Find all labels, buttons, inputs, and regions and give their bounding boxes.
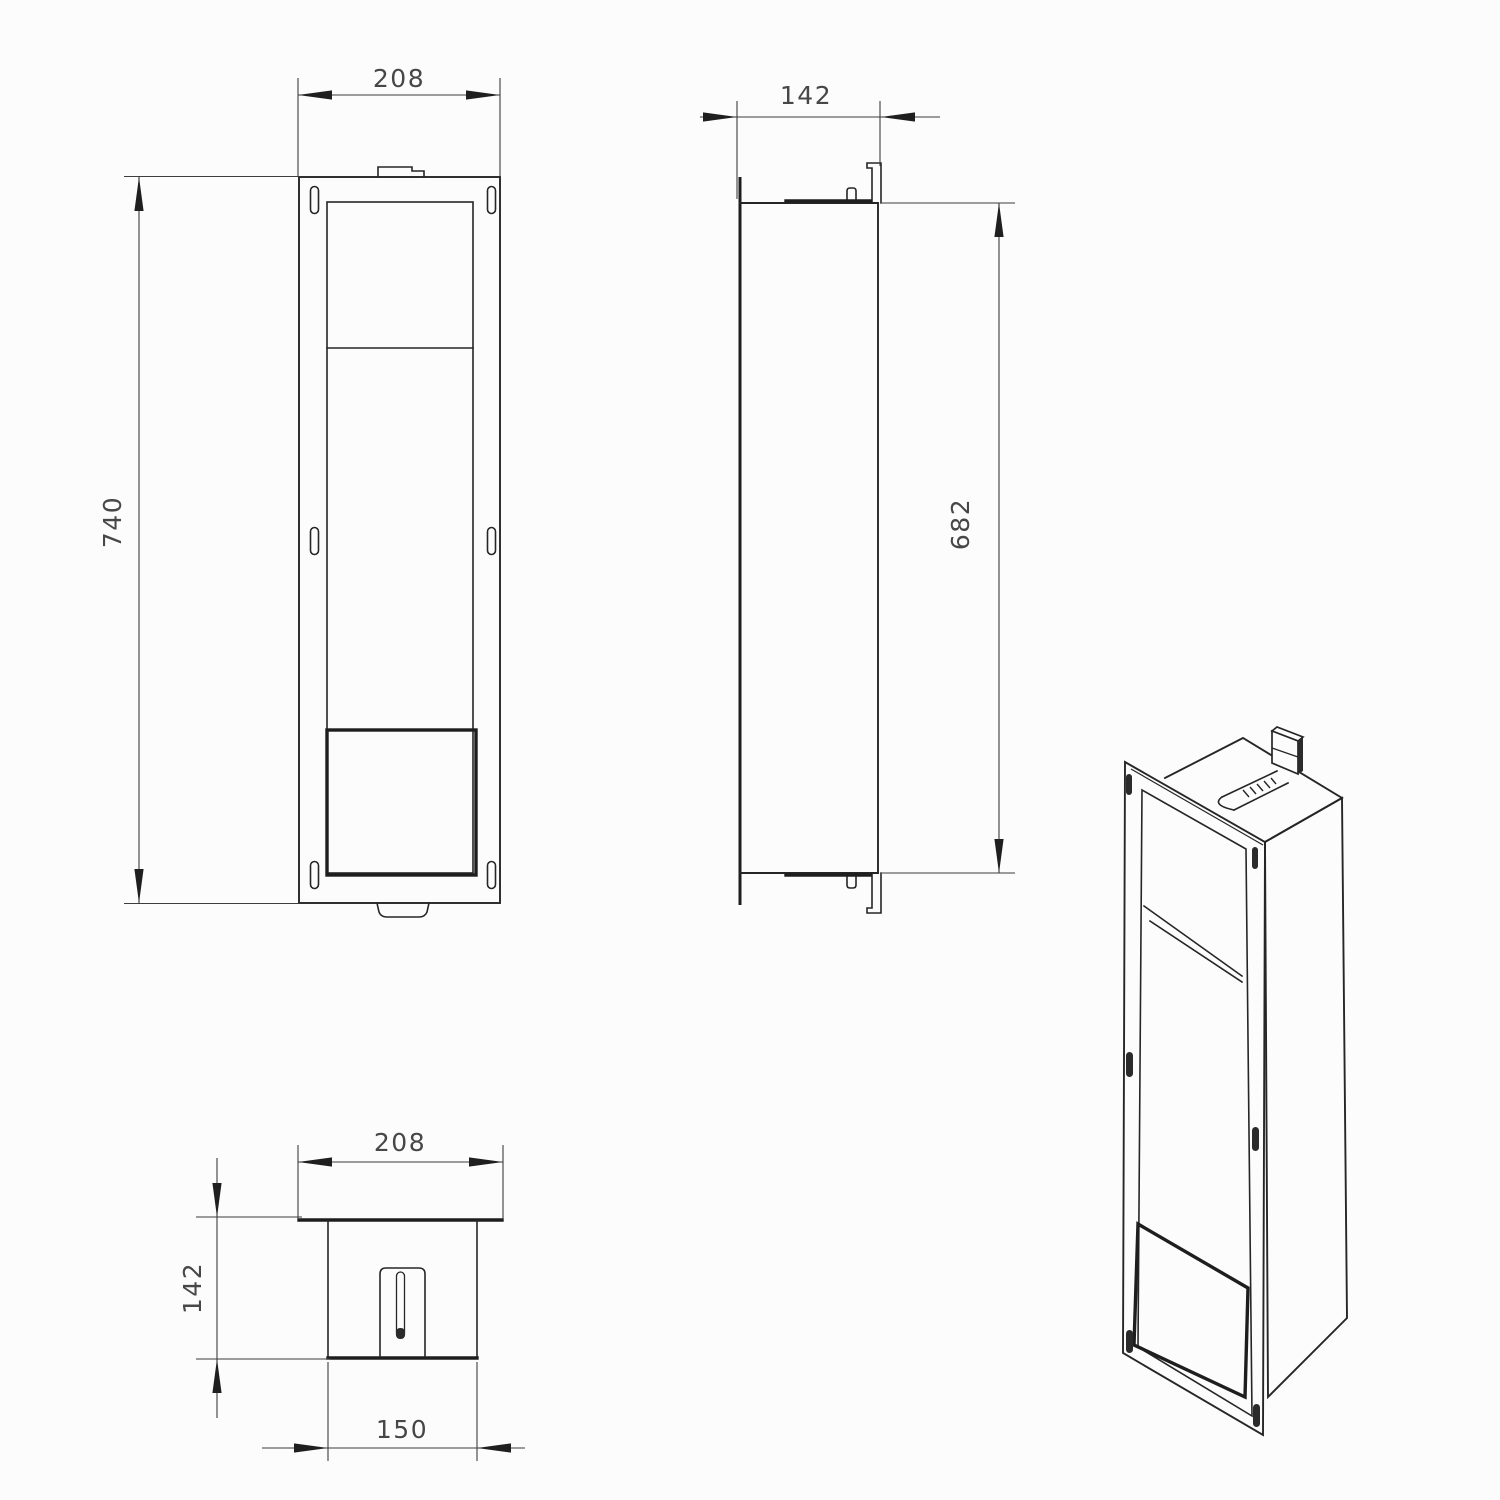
front-flange-outline bbox=[299, 177, 500, 903]
front-opening-outline bbox=[327, 202, 473, 873]
dimension-label: 208 bbox=[373, 64, 425, 93]
arrowhead-up bbox=[212, 1359, 221, 1393]
arrowhead-left bbox=[298, 1157, 332, 1166]
front-width-dimension: 208 bbox=[298, 64, 500, 176]
front-slot-bottom-left bbox=[311, 862, 319, 889]
dimension-label: 740 bbox=[98, 496, 127, 548]
front-dispenser-door bbox=[327, 730, 476, 875]
iso-slot-top-right bbox=[1252, 847, 1258, 869]
side-view: 142 682 bbox=[700, 81, 1015, 913]
iso-shelf-edge-top bbox=[1144, 906, 1242, 976]
arrowhead-left bbox=[477, 1443, 511, 1452]
dimension-label: 150 bbox=[376, 1415, 428, 1444]
side-top-bracket-profile bbox=[867, 163, 881, 203]
dimension-label: 142 bbox=[178, 1262, 207, 1314]
iso-slot-mid-left bbox=[1126, 1052, 1133, 1077]
iso-flange-outline bbox=[1123, 762, 1265, 1435]
technical-drawing: 208 740 bbox=[0, 0, 1500, 1500]
dimension-label: 208 bbox=[374, 1128, 426, 1157]
arrowhead-down bbox=[134, 869, 143, 903]
dimension-label: 142 bbox=[780, 81, 832, 110]
side-bottom-bracket-profile bbox=[867, 873, 881, 913]
plan-channel-slit-end bbox=[396, 1328, 405, 1339]
iso-bracket-side-face bbox=[1298, 737, 1303, 774]
iso-slot-bottom-left bbox=[1126, 1330, 1133, 1353]
arrowhead-up bbox=[994, 203, 1003, 237]
iso-flange-thickness-edge bbox=[1131, 769, 1263, 845]
dimension-label: 682 bbox=[946, 498, 975, 550]
front-height-dimension: 740 bbox=[98, 177, 298, 904]
arrowhead-down bbox=[994, 839, 1003, 873]
iso-channel-rounded-end bbox=[1218, 797, 1234, 810]
arrowhead-left bbox=[298, 90, 332, 99]
plan-inner-width-dimension: 150 bbox=[262, 1362, 525, 1461]
isometric-view bbox=[1123, 727, 1347, 1435]
iso-opening-outline bbox=[1138, 790, 1252, 1416]
plan-depth-dimension: 142 bbox=[178, 1158, 330, 1418]
iso-slot-mid-right bbox=[1252, 1127, 1259, 1151]
iso-box-right-face bbox=[1265, 798, 1347, 1397]
iso-box-top-face bbox=[1165, 738, 1342, 842]
side-depth-dimension: 142 bbox=[700, 81, 940, 199]
iso-slot-bottom-right bbox=[1253, 1404, 1260, 1427]
front-slot-bottom-right bbox=[488, 862, 496, 889]
arrowhead-left bbox=[881, 112, 915, 121]
arrowhead-right bbox=[466, 90, 500, 99]
arrowhead-right bbox=[469, 1157, 503, 1166]
iso-slot-top-left bbox=[1126, 774, 1132, 795]
plan-channel-outline bbox=[380, 1268, 425, 1357]
front-slot-top-right bbox=[488, 187, 496, 214]
arrowhead-up bbox=[134, 177, 143, 211]
iso-channel-slot-ticks bbox=[1243, 778, 1276, 797]
front-bottom-tab bbox=[377, 903, 429, 917]
front-slot-top-left bbox=[311, 187, 319, 214]
iso-dispenser-door bbox=[1134, 1224, 1248, 1397]
drawing-canvas: 208 740 bbox=[0, 0, 1500, 1500]
arrowhead-down bbox=[212, 1183, 221, 1217]
arrowhead-right bbox=[703, 112, 737, 121]
iso-shelf-edge-bottom bbox=[1150, 921, 1242, 982]
front-slot-mid-left bbox=[311, 528, 319, 555]
plan-view: 208 142 150 bbox=[178, 1128, 525, 1461]
front-top-tab bbox=[378, 167, 424, 177]
front-slot-mid-right bbox=[488, 528, 496, 555]
arrowhead-right bbox=[294, 1443, 328, 1452]
plan-width-dimension: 208 bbox=[298, 1128, 503, 1219]
side-height-dimension: 682 bbox=[882, 203, 1015, 873]
front-view: 208 740 bbox=[98, 64, 500, 917]
